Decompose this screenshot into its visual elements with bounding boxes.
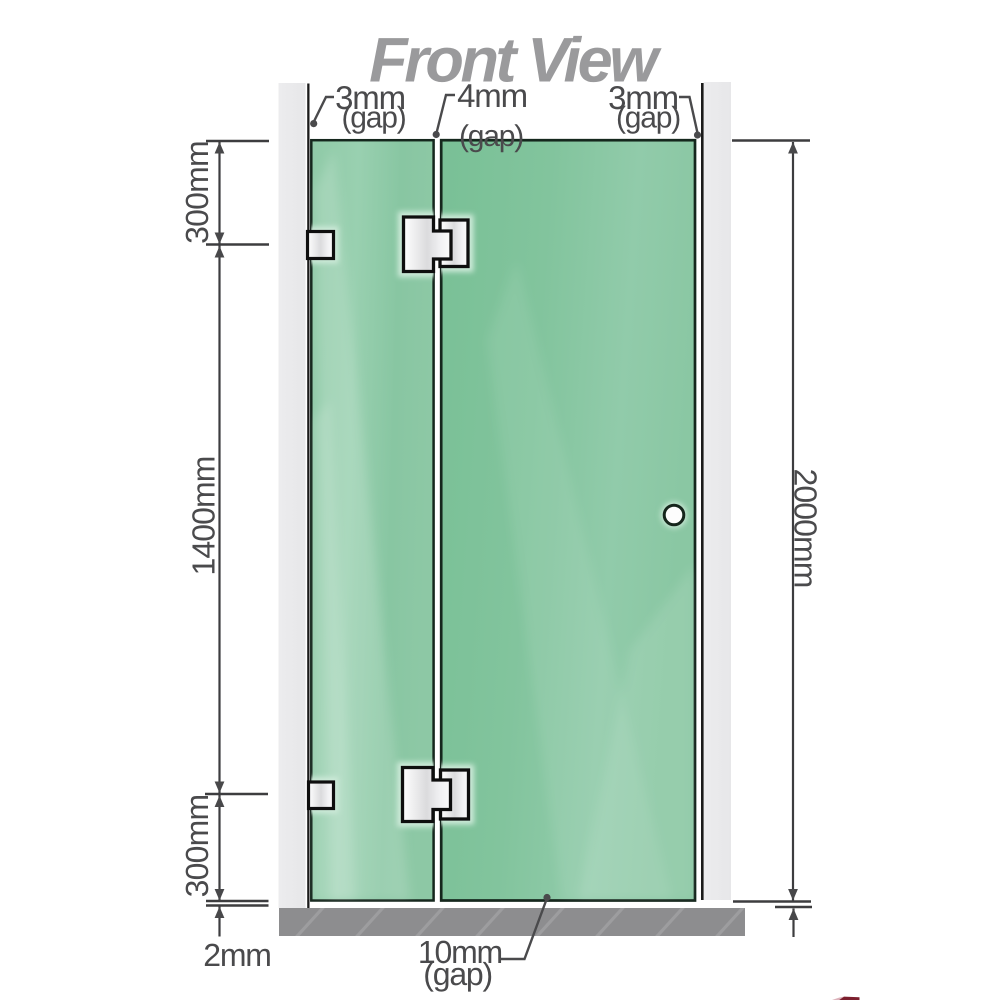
svg-text:(gap): (gap) <box>616 102 680 135</box>
svg-text:(gap): (gap) <box>341 102 405 135</box>
svg-text:2mm: 2mm <box>203 937 271 973</box>
svg-text:4mm: 4mm <box>457 77 527 114</box>
svg-text:1400mm: 1400mm <box>186 456 222 575</box>
svg-text:300mm: 300mm <box>179 795 215 898</box>
svg-text:2000mm: 2000mm <box>788 468 824 587</box>
svg-text:(gap): (gap) <box>459 120 523 153</box>
svg-text:(gap): (gap) <box>423 956 492 992</box>
svg-text:300mm: 300mm <box>179 141 215 244</box>
